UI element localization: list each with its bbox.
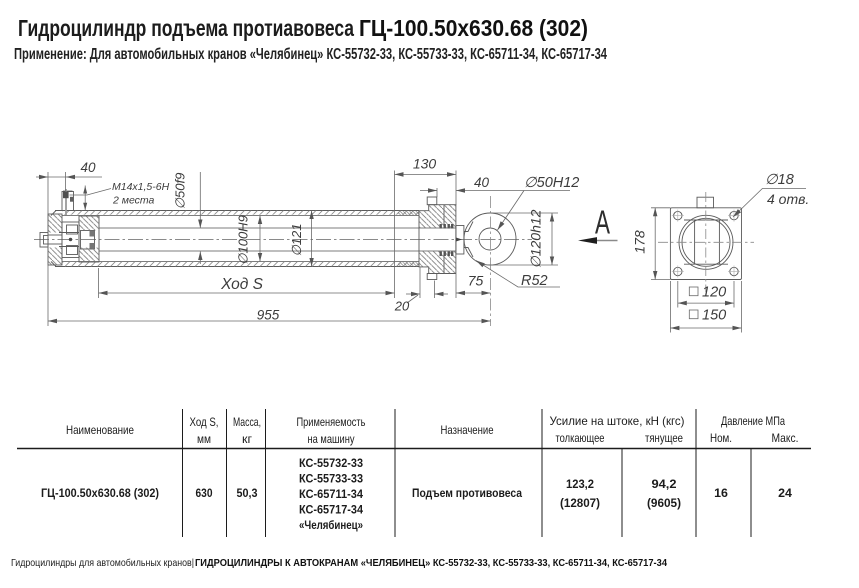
svg-text:∅50Н12: ∅50Н12	[524, 175, 579, 191]
svg-text:ГИДРОЦИЛИНДРЫ К АВТОКРАНАМ «ЧЕ: ГИДРОЦИЛИНДРЫ К АВТОКРАНАМ «ЧЕЛЯБИНЕЦ» К…	[195, 557, 667, 569]
svg-text:∅50f9: ∅50f9	[173, 173, 188, 210]
svg-text:ГЦ-100.50х630.68 (302): ГЦ-100.50х630.68 (302)	[359, 15, 588, 41]
svg-text:КС-55732-33: КС-55732-33	[299, 456, 363, 470]
svg-text:кг: кг	[242, 432, 252, 446]
svg-text:630: 630	[196, 486, 213, 500]
svg-text:мм: мм	[197, 432, 211, 446]
svg-text:(12807): (12807)	[560, 496, 600, 510]
svg-text:24: 24	[778, 486, 792, 500]
svg-text:Ном.: Ном.	[710, 431, 732, 445]
svg-text:16: 16	[714, 486, 728, 500]
svg-text:150: 150	[702, 308, 726, 324]
svg-text:∅100Н9: ∅100Н9	[236, 215, 251, 265]
svg-text:40: 40	[80, 160, 96, 175]
svg-text:КС-65711-34: КС-65711-34	[299, 487, 363, 501]
svg-text:94,2: 94,2	[652, 477, 677, 491]
svg-text:Подъем противовеса: Подъем противовеса	[412, 486, 522, 500]
svg-text:178: 178	[632, 230, 648, 254]
svg-text:∅121: ∅121	[289, 223, 304, 256]
svg-text:20: 20	[394, 299, 410, 314]
svg-text:4 отв.: 4 отв.	[767, 191, 809, 207]
svg-text:А: А	[595, 204, 610, 241]
svg-text:КС-55733-33: КС-55733-33	[299, 472, 363, 486]
svg-text:∅120h12: ∅120h12	[528, 209, 544, 268]
svg-text:Гидроцилиндры для автомобильны: Гидроцилиндры для автомобильных кранов|	[11, 557, 194, 569]
svg-text:955: 955	[257, 308, 280, 323]
svg-text:толкающее: толкающее	[556, 431, 605, 445]
svg-text:«Челябинец»: «Челябинец»	[299, 518, 363, 532]
svg-text:123,2: 123,2	[566, 477, 594, 491]
svg-text:КС-65717-34: КС-65717-34	[299, 503, 363, 517]
svg-text:Применяемость: Применяемость	[297, 415, 366, 429]
svg-text:Давление МПа: Давление МПа	[721, 414, 785, 428]
svg-text:Макс.: Макс.	[772, 431, 799, 445]
svg-text:тянущее: тянущее	[645, 431, 683, 445]
svg-text:Ход S: Ход S	[220, 276, 263, 293]
svg-text:Усилие на штоке, кН (кгс): Усилие на штоке, кН (кгс)	[550, 414, 685, 428]
svg-text:2 места: 2 места	[112, 195, 155, 207]
svg-text:Ход S,: Ход S,	[190, 415, 219, 429]
svg-text:Наименование: Наименование	[66, 423, 134, 437]
svg-text:Масса,: Масса,	[233, 415, 261, 429]
svg-text:∅18: ∅18	[765, 172, 794, 188]
svg-text:50,3: 50,3	[237, 486, 258, 500]
svg-text:40: 40	[474, 175, 490, 190]
svg-text:Назначение: Назначение	[441, 423, 494, 437]
svg-text:120: 120	[702, 285, 726, 301]
svg-text:130: 130	[413, 156, 437, 172]
svg-text:Применение: Для автомобильных: Применение: Для автомобильных кранов «Че…	[14, 46, 607, 63]
svg-text:ГЦ-100.50х630.68 (302): ГЦ-100.50х630.68 (302)	[41, 486, 159, 500]
svg-text:на машину: на машину	[308, 432, 355, 446]
svg-text:M14х1,5-6Н: M14х1,5-6Н	[112, 181, 170, 193]
svg-text:R52: R52	[521, 273, 548, 289]
svg-text:Гидроцилиндр подъема протиавов: Гидроцилиндр подъема протиавовеса	[18, 15, 354, 41]
svg-text:75: 75	[468, 273, 484, 289]
svg-text:(9605): (9605)	[647, 496, 681, 510]
